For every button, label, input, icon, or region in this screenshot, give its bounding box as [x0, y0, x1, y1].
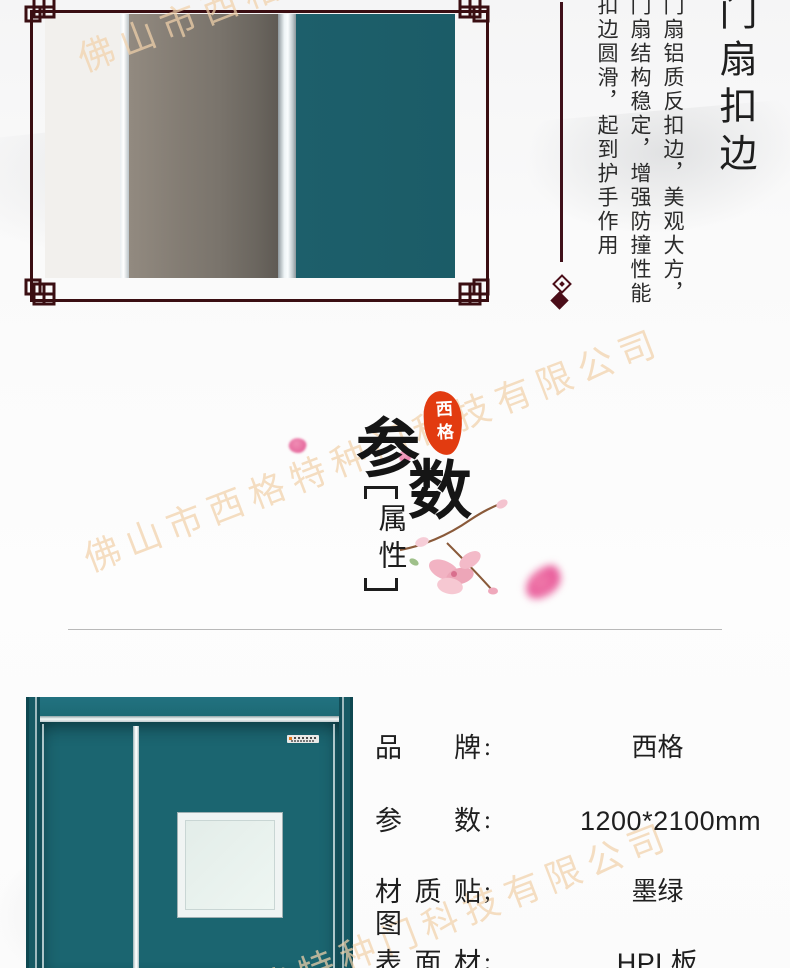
side-desc-column: 扣边圆滑，起到护手作用: [590, 0, 623, 336]
section-divider: [68, 629, 722, 630]
fret-corner-icon: [456, 272, 492, 308]
spec-value: HPL板: [580, 947, 735, 968]
spec-value: 1200*2100mm: [580, 805, 735, 837]
door-astragal-strip: [133, 726, 139, 968]
spec-value: 墨绿: [580, 876, 735, 908]
brand-label-text-line: [294, 737, 317, 739]
product-door-photo: [26, 697, 353, 968]
spec-row-surface-material: 表面材质: HPL板: [375, 947, 725, 968]
product-detail-page: 佛山市西格特种门科技有限公司 佛山市西格特种门科技有限公司 佛山市西格特种门科技…: [0, 0, 790, 968]
door-lintel: [40, 697, 339, 716]
spec-separator: :: [484, 949, 491, 968]
section-description-vertical: 门扇铝质反扣边，美观大方， 门扇结构稳定，增强防撞性能 扣边圆滑，起到护手作用: [590, 0, 689, 336]
vertical-accent-line: [560, 2, 563, 262]
params-calligraphy-char: 数: [408, 460, 472, 524]
door-frame-jamb-right: [339, 697, 353, 968]
spec-label: 表面材质: [375, 947, 481, 968]
spec-row-texture: 材质贴图; 墨绿: [375, 876, 725, 910]
attributes-label-vertical: 属性: [369, 503, 411, 583]
spec-row-size: 参数: 1200*2100mm: [375, 805, 725, 839]
fret-corner-icon: [22, 0, 58, 29]
bracket-bottom: [364, 578, 398, 591]
side-desc-column: 门扇结构稳定，增强防撞性能: [623, 0, 656, 336]
spec-label: 参数: [375, 805, 481, 837]
door-inner-trim-right: [333, 724, 335, 968]
brand-seal-text: 西格: [429, 399, 456, 446]
spec-label: 材质贴图: [375, 876, 481, 940]
door-brand-label: [287, 735, 319, 743]
door-inner-trim-left: [42, 724, 44, 968]
brand-label-text-line: [291, 740, 315, 742]
section-title-vertical: 门扇扣边: [707, 0, 762, 202]
spec-table: 品牌: 西格 参数: 1200*2100mm 材质贴图; 墨绿 表面材质: HP…: [375, 710, 725, 968]
door-frame-jamb-left: [26, 697, 40, 968]
diamond-filled-icon: [550, 291, 568, 309]
spec-separator: :: [484, 807, 491, 834]
spec-value: 西格: [580, 732, 735, 764]
side-desc-column: 门扇铝质反扣边，美观大方，: [656, 0, 689, 336]
spec-separator: :: [484, 734, 491, 761]
fret-corner-icon: [456, 0, 492, 29]
spec-label: 品牌: [375, 732, 481, 764]
spec-row-brand: 品牌: 西格: [375, 732, 725, 766]
diamond-outline-icon: [552, 274, 572, 294]
spec-separator: ;: [484, 878, 491, 905]
fret-corner-icon: [22, 272, 58, 308]
bracket-top: [364, 486, 398, 499]
door-window: [177, 812, 283, 918]
window-glass: [185, 820, 275, 910]
